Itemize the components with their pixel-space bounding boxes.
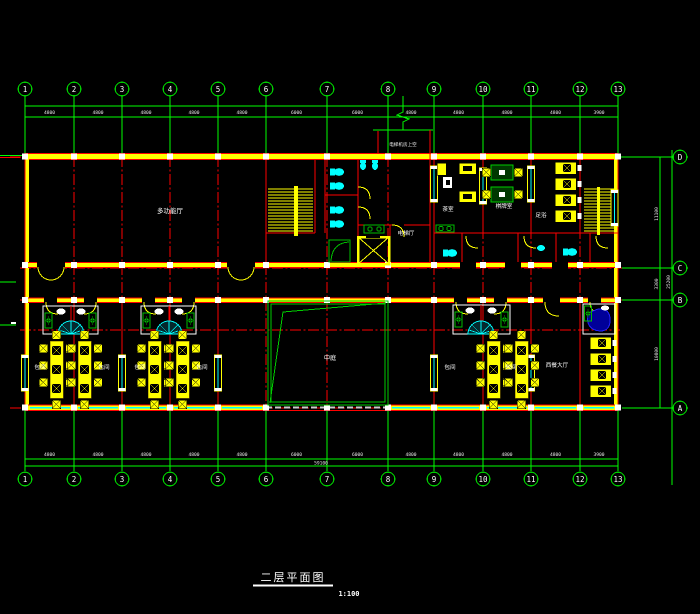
grid-col-label: 4 bbox=[168, 475, 173, 484]
grid-col-label: 6 bbox=[264, 85, 269, 94]
room-label-tea: 茶室 bbox=[442, 205, 454, 213]
grid-col-label: 13 bbox=[613, 85, 622, 94]
dim-value: 4800 bbox=[236, 110, 247, 116]
dim-value: 4800 bbox=[405, 110, 416, 116]
dim-total: 25200 bbox=[666, 275, 672, 289]
dim-value: 4800 bbox=[188, 452, 199, 458]
dim-value: 4800 bbox=[453, 110, 464, 116]
grid-row-label: C bbox=[678, 264, 683, 273]
room-label-private: 包间 bbox=[505, 363, 517, 371]
grid-col-label: 9 bbox=[432, 85, 437, 94]
grid-col-label: 7 bbox=[325, 85, 330, 94]
room-label-foot: 足浴 bbox=[535, 211, 547, 219]
room-label-private: 包间 bbox=[196, 363, 208, 371]
cad-viewport: 1 2 3 4 5 6 7 8 9 10 11 12 13 1 2 3 4 5 … bbox=[0, 0, 700, 614]
grid-row-label: B bbox=[678, 296, 683, 305]
dim-value: 3300 bbox=[654, 278, 660, 289]
grid-col-label: 2 bbox=[72, 475, 77, 484]
dim-value: 4800 bbox=[453, 452, 464, 458]
grid-col-label: 11 bbox=[526, 85, 535, 94]
grid-col-label: 12 bbox=[575, 475, 584, 484]
dim-value: 4800 bbox=[92, 452, 103, 458]
dim-value: 4800 bbox=[44, 452, 55, 458]
room-label-atrium: 中庭 bbox=[324, 354, 336, 362]
dim-value: 6000 bbox=[352, 110, 363, 116]
dim-value: 10800 bbox=[654, 347, 660, 361]
room-label-private: 包间 bbox=[98, 363, 110, 371]
grid-col-label: 10 bbox=[478, 85, 488, 94]
room-label-west-hall: 西餐大厅 bbox=[546, 361, 569, 369]
grid-col-label: 2 bbox=[72, 85, 77, 94]
dim-value: 4800 bbox=[405, 452, 416, 458]
room-label-private: 包间 bbox=[134, 363, 146, 371]
drawing-background bbox=[0, 0, 700, 614]
dim-value: 4800 bbox=[140, 110, 151, 116]
room-label-chess: 棋牌室 bbox=[496, 202, 513, 210]
dim-value: 3900 bbox=[593, 452, 604, 458]
grid-col-label: 7 bbox=[325, 475, 330, 484]
dim-value: 6000 bbox=[291, 452, 302, 458]
dim-value: 4800 bbox=[236, 452, 247, 458]
grid-col-label: 11 bbox=[526, 475, 535, 484]
grid-col-label: 8 bbox=[386, 85, 391, 94]
grid-col-label: 12 bbox=[575, 85, 584, 94]
floor-plan-canvas: 1 2 3 4 5 6 7 8 9 10 11 12 13 1 2 3 4 5 … bbox=[0, 0, 700, 614]
grid-col-label: 3 bbox=[120, 475, 125, 484]
dim-value: 4800 bbox=[501, 110, 512, 116]
grid-col-label: 6 bbox=[264, 475, 269, 484]
dim-value: 3900 bbox=[593, 110, 604, 116]
room-label-elevator-hall: 电梯厅 bbox=[398, 229, 415, 237]
dim-value: 6000 bbox=[352, 452, 363, 458]
grid-col-label: 3 bbox=[120, 85, 125, 94]
dim-value: 4800 bbox=[140, 452, 151, 458]
room-label-machine: 电梯机房上空 bbox=[389, 141, 417, 148]
dim-value: 4800 bbox=[44, 110, 55, 116]
grid-col-label: 13 bbox=[613, 475, 622, 484]
room-label-private: 包间 bbox=[444, 363, 456, 371]
grid-col-label: 1 bbox=[23, 85, 28, 94]
room-label-hall: 多功能厅 bbox=[157, 206, 184, 215]
dim-value: 4800 bbox=[550, 110, 561, 116]
dim-value: 4800 bbox=[92, 110, 103, 116]
grid-col-label: 10 bbox=[478, 475, 488, 484]
room-label-private: 包间 bbox=[34, 363, 46, 371]
grid-col-label: 5 bbox=[216, 85, 221, 94]
grid-col-label: 5 bbox=[216, 475, 221, 484]
grid-row-label: A bbox=[678, 404, 683, 413]
grid-col-label: 1 bbox=[23, 475, 28, 484]
dim-value: 4800 bbox=[550, 452, 561, 458]
dim-value: 11100 bbox=[654, 207, 660, 221]
grid-col-label: 9 bbox=[432, 475, 437, 484]
grid-col-label: 8 bbox=[386, 475, 391, 484]
grid-col-label: 4 bbox=[168, 85, 173, 94]
drawing-scale: 1:100 bbox=[338, 590, 359, 598]
dim-value: 4800 bbox=[188, 110, 199, 116]
grid-row-label: D bbox=[678, 153, 683, 162]
dim-value: 6000 bbox=[291, 110, 302, 116]
dim-value: 4800 bbox=[501, 452, 512, 458]
drawing-title: 二层平面图 bbox=[261, 571, 326, 584]
dim-total: 59100 bbox=[314, 461, 328, 467]
